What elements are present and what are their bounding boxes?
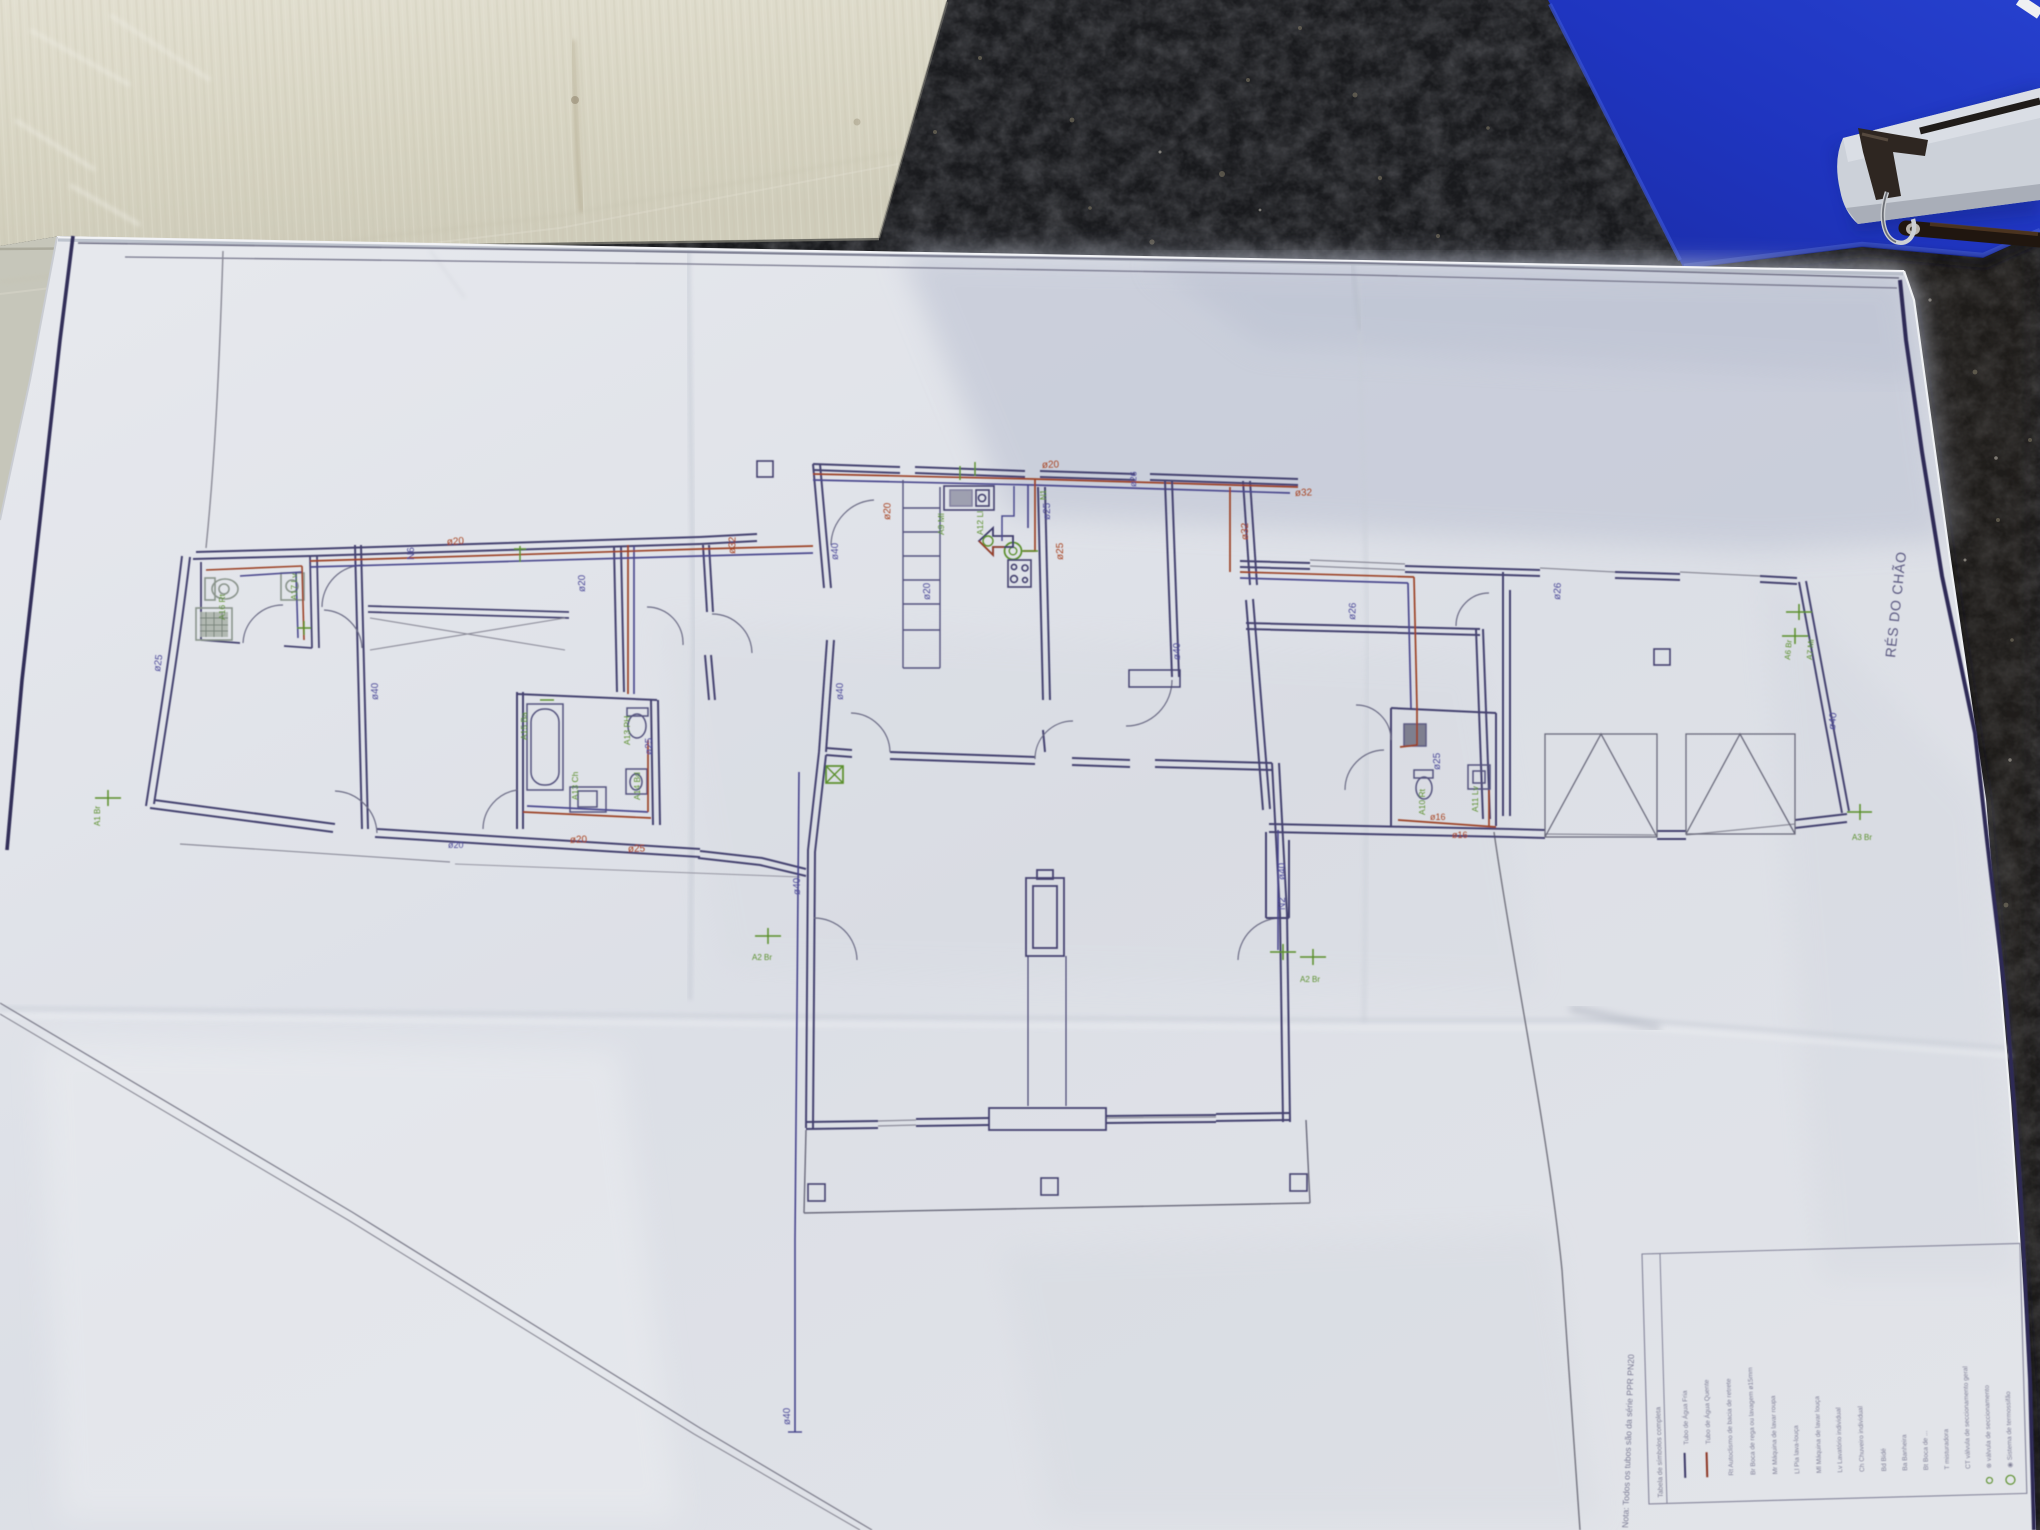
svg-text:ø32: ø32 xyxy=(1295,487,1313,499)
svg-text:ø40: ø40 xyxy=(792,877,803,895)
svg-text:A17 Lv: A17 Lv xyxy=(289,573,299,600)
svg-text:ø25: ø25 xyxy=(1432,752,1443,770)
svg-text:A11 Lv: A11 Lv xyxy=(1470,785,1480,812)
svg-text:A2 Br: A2 Br xyxy=(752,953,772,962)
svg-text:A1 Br: A1 Br xyxy=(93,806,102,826)
svg-text:ø20: ø20 xyxy=(1042,459,1060,471)
svg-text:ø20: ø20 xyxy=(922,582,933,600)
svg-text:ø26: ø26 xyxy=(1347,602,1359,620)
svg-text:ø25: ø25 xyxy=(628,843,646,855)
svg-text:ø40: ø40 xyxy=(830,542,841,560)
svg-text:Bt Boca de ...: Bt Boca de ... xyxy=(1922,1430,1930,1470)
svg-text:ø20: ø20 xyxy=(577,574,588,592)
svg-text:ø20: ø20 xyxy=(570,834,588,846)
svg-text:ø16: ø16 xyxy=(1452,830,1468,840)
svg-text:A13 PH: A13 PH xyxy=(622,716,632,745)
svg-text:A13 Ch: A13 Ch xyxy=(570,771,580,800)
svg-text:N1: N1 xyxy=(1039,489,1048,500)
svg-text:N2: N2 xyxy=(1277,897,1288,910)
svg-text:A2 Br: A2 Br xyxy=(1300,975,1320,984)
svg-text:ø40: ø40 xyxy=(835,682,846,700)
svg-text:A6 Br: A6 Br xyxy=(1783,639,1794,660)
svg-text:A14 Bd: A14 Bd xyxy=(632,772,642,800)
svg-text:ø40: ø40 xyxy=(782,1407,793,1425)
svg-text:A9 Ml: A9 Ml xyxy=(936,513,946,535)
svg-text:A16 Rt: A16 Rt xyxy=(217,593,227,620)
svg-text:ø25: ø25 xyxy=(1042,502,1053,520)
svg-text:ø40: ø40 xyxy=(1277,862,1288,880)
svg-text:ø16: ø16 xyxy=(1430,812,1446,822)
svg-text:ø26: ø26 xyxy=(1552,582,1564,600)
svg-text:T misturadora: T misturadora xyxy=(1943,1429,1951,1470)
svg-text:ø26: ø26 xyxy=(1128,471,1139,487)
svg-text:A12 Ll: A12 Ll xyxy=(975,511,985,535)
svg-text:ø32: ø32 xyxy=(1240,522,1251,540)
svg-text:ø20: ø20 xyxy=(882,502,894,520)
svg-text:Ba Banheira: Ba Banheira xyxy=(1901,1434,1909,1471)
svg-text:ø20: ø20 xyxy=(448,840,464,850)
svg-text:ø20: ø20 xyxy=(446,536,464,548)
svg-text:Bd Bidé: Bd Bidé xyxy=(1881,1448,1889,1472)
svg-text:ø40: ø40 xyxy=(1172,642,1183,660)
svg-text:Ll Pia lava-louça: Ll Pia lava-louça xyxy=(1793,1425,1801,1474)
svg-text:ø40: ø40 xyxy=(1827,712,1839,731)
svg-text:ø25: ø25 xyxy=(1055,542,1066,560)
svg-text:N6: N6 xyxy=(406,547,417,560)
svg-text:ø25: ø25 xyxy=(644,737,655,755)
svg-text:A10 Rt: A10 Rt xyxy=(1417,788,1427,815)
svg-text:A3 Br: A3 Br xyxy=(1852,833,1872,842)
svg-text:A7 Mr: A7 Mr xyxy=(1805,638,1816,660)
svg-text:ø40: ø40 xyxy=(370,682,381,700)
svg-text:A15 Ba: A15 Ba xyxy=(519,712,529,740)
svg-text:ø32: ø32 xyxy=(727,536,739,554)
